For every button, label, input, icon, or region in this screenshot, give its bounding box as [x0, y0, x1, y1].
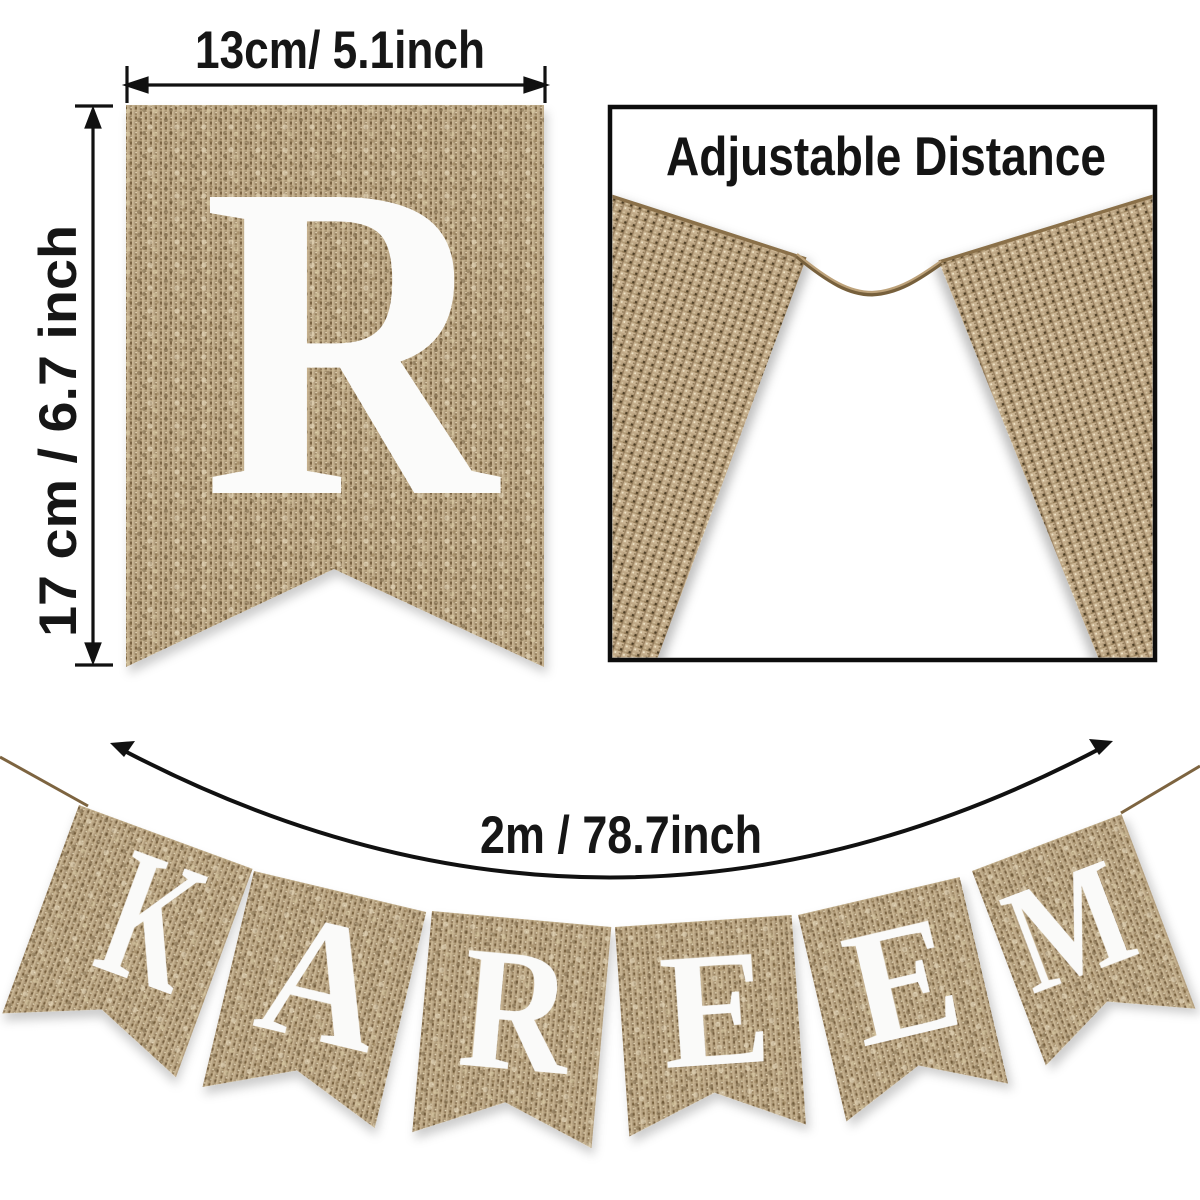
- svg-text:13cm/ 5.1inch: 13cm/ 5.1inch: [195, 21, 485, 80]
- svg-text:E: E: [655, 915, 776, 1104]
- svg-text:R: R: [203, 90, 502, 591]
- svg-text:2m / 78.7inch: 2m / 78.7inch: [480, 806, 762, 865]
- svg-text:Adjustable Distance: Adjustable Distance: [666, 125, 1106, 187]
- svg-text:17 cm / 6.7 inch: 17 cm / 6.7 inch: [29, 225, 88, 637]
- svg-text:R: R: [453, 910, 581, 1113]
